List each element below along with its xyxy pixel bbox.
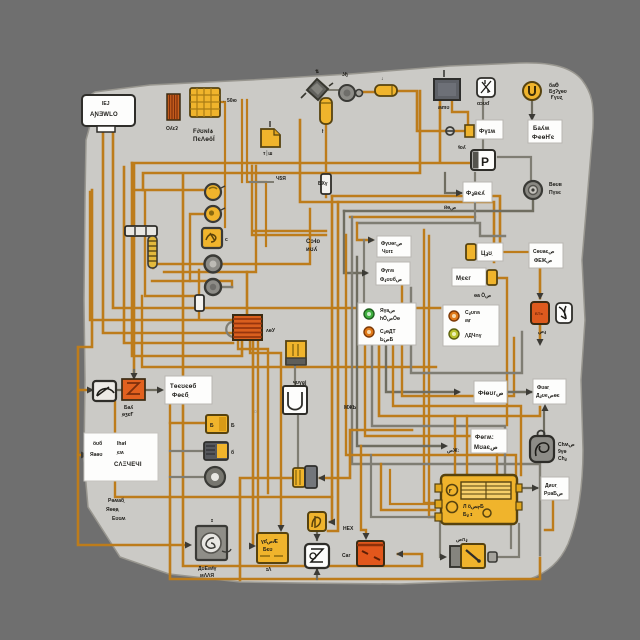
svg-text:Ғ: Ғ (449, 489, 452, 495)
svg-text:Oʎɛʡ: Oʎɛʡ (166, 126, 178, 132)
svg-text:ֶєʍ: ֶєʍ (116, 450, 124, 456)
svg-text:Сһډַ: Сһډַ (558, 455, 568, 462)
svg-text:ɬοʎ: ɬοʎ (458, 145, 466, 151)
svg-text:Іһаɬ: Іһаɬ (117, 440, 126, 447)
svg-text:ДʊЕʍɬү: ДʊЕʍɬү (198, 566, 217, 572)
svg-text:ϲ: ϲ (225, 237, 228, 243)
svg-text:Сһʍص: Сһʍص (558, 441, 575, 448)
svg-text:Фɬөʊгص: Фɬөʊгص (478, 391, 503, 397)
svg-text:ɪ: ɪ (211, 518, 213, 524)
svg-text:БΤө: БΤө (535, 311, 543, 316)
svg-text:Яүаصַ: Яүаصַ (380, 308, 395, 314)
svg-text:9үө: 9үө (558, 449, 567, 455)
svg-text:һӦصӦө: һӦصӦө (380, 315, 400, 322)
svg-text:Б: Б (231, 423, 235, 429)
svg-text:Фʊагַ: Фʊагַ (537, 385, 550, 391)
svg-text:иʊʎ: иʊʎ (306, 247, 318, 253)
svg-text:Саг: Саг (342, 553, 351, 559)
svg-text:ɑɔʊɗ: ɑɔʊɗ (477, 101, 490, 107)
svg-text:P: P (481, 155, 489, 169)
svg-text:ɪΛ: ɪΛ (266, 567, 272, 573)
svg-text:ʍmʊ: ʍmʊ (437, 105, 449, 111)
svg-text:Мʊаєصַ: Мʊаєصַ (474, 445, 498, 451)
svg-text:Рөʍабַֻ: Рөʍабַֻ (108, 497, 125, 504)
svg-text:МЖЬ: МЖЬ (344, 405, 357, 411)
svg-text:РַʊаБص: РַʊаБص (544, 491, 563, 497)
svg-text:ӥөص: ӥөص (444, 205, 456, 211)
svg-text:Τөєʊєөб: Τөєʊєөб (170, 383, 197, 390)
svg-text:AƝƎWLO: AƝƎWLO (90, 112, 118, 118)
svg-text:ʌөУ: ʌөУ (266, 328, 276, 334)
svg-text:б: б (231, 449, 234, 456)
svg-text:Сɔɬɒ: Сɔɬɒ (306, 239, 320, 245)
svg-text:Фүʊөгص: Фүʊөгص (381, 241, 402, 247)
svg-text:ֻөʒєҒ: ֻөʒєҒ (121, 412, 133, 418)
svg-text:ө׃а Ӧص: ө׃а Ӧص (474, 292, 491, 299)
svg-text:СΛΞЧЕЧІ: СΛΞЧЕЧІ (114, 462, 142, 468)
svg-text:ПєΛөӧЇ: ПєΛөӧЇ (193, 136, 215, 143)
svg-text:Б: Б (210, 423, 214, 429)
svg-text:Фөгʍ:: Фөгʍ: (475, 435, 494, 441)
svg-text:Бډ ɪ: Бډ ɪ (463, 512, 472, 518)
svg-text:◌: ◌ (254, 409, 257, 415)
svg-text:Фډʊʊбص: Фډʊʊбص (380, 276, 402, 283)
svg-text:СډөДΤ: СډөДΤ (380, 329, 396, 335)
svg-text:Дډʊеصөє: Дډʊеصөє (536, 393, 560, 399)
svg-text:т׀ш: т׀ш (263, 150, 272, 157)
svg-text:ֻΛДЧהү: ֻΛДЧהү (464, 333, 482, 339)
svg-text:Ьص׃Б: Ьص׃Б (380, 337, 394, 343)
svg-text:үֻɗصӔ: үֻɗصӔ (261, 539, 278, 545)
svg-text:Фөєбַ: Фөєбַ (172, 392, 190, 399)
svg-text:Мַєєг: Мַєєг (456, 276, 471, 282)
svg-text:Фډвєʎ: Фډвєʎ (466, 191, 485, 197)
svg-text:F∂ʊɴІۃ: F∂ʊɴІۃ (193, 128, 214, 135)
svg-text:Баʎ: Баʎ (124, 405, 133, 411)
svg-text:ډהص: ډהص (456, 537, 468, 543)
svg-text:баӪ: баӪ (549, 82, 559, 89)
svg-text:ʍַг: ʍַг (464, 318, 471, 324)
svg-text:ʖɧ: ʖɧ (342, 72, 348, 78)
svg-text:Ғүʊʐ: Ғүʊʐ (551, 95, 563, 101)
svg-text:Яөөֻ׃аֻ: Яөөֻ׃аֻ (106, 507, 119, 513)
svg-text:ӧʊб: ӧʊб (93, 440, 102, 447)
svg-text:Пүѕє: Пүѕє (549, 190, 561, 196)
svg-text:ФЕЖص: ФЕЖص (534, 258, 552, 264)
svg-text:Чַʊгɪ: Чַʊгɪ (382, 249, 393, 255)
svg-text:НЕХ: НЕХ (343, 526, 354, 532)
svg-text:Фүɪʍ: Фүɪʍ (479, 129, 495, 135)
svg-text:БХү: БХү (318, 181, 328, 187)
svg-text:ډص: ډص (538, 329, 547, 335)
svg-text:Диʊгַ: Диʊгַ (545, 483, 558, 489)
svg-text:мΛΛЯ: мΛΛЯ (200, 573, 214, 579)
svg-text:IEJ: IEJ (102, 101, 110, 107)
svg-text:Л ӧڄصַБ: Л ӧڄصַБ (463, 504, 484, 510)
svg-text:Вөʊв: Вөʊв (549, 182, 562, 188)
svg-text:Цډʊַ: Цډʊַ (481, 251, 493, 257)
svg-text:ФҽөҤє: ФҽөҤє (532, 135, 555, 141)
svg-text:Бєʊ: Бєʊ (263, 547, 272, 553)
svg-text:Сډʊгʍ: Сډʊгʍ (465, 310, 480, 316)
svg-text:↓: ↓ (381, 76, 384, 82)
svg-text:Фүгʍ: Фүгʍ (381, 268, 394, 274)
svg-text:Баʎʍ: Баʎʍ (533, 126, 550, 132)
svg-text:←50ю: ←50ю (222, 98, 238, 104)
svg-text:Ч5Я: Ч5Я (276, 176, 286, 182)
svg-text:Яаөʊ: Яаөʊ (90, 452, 103, 458)
svg-text:Еʊʊʍ: Еʊʊʍ (112, 516, 126, 522)
svg-text:Сөʊаєص: Сөʊаєص (533, 249, 554, 255)
